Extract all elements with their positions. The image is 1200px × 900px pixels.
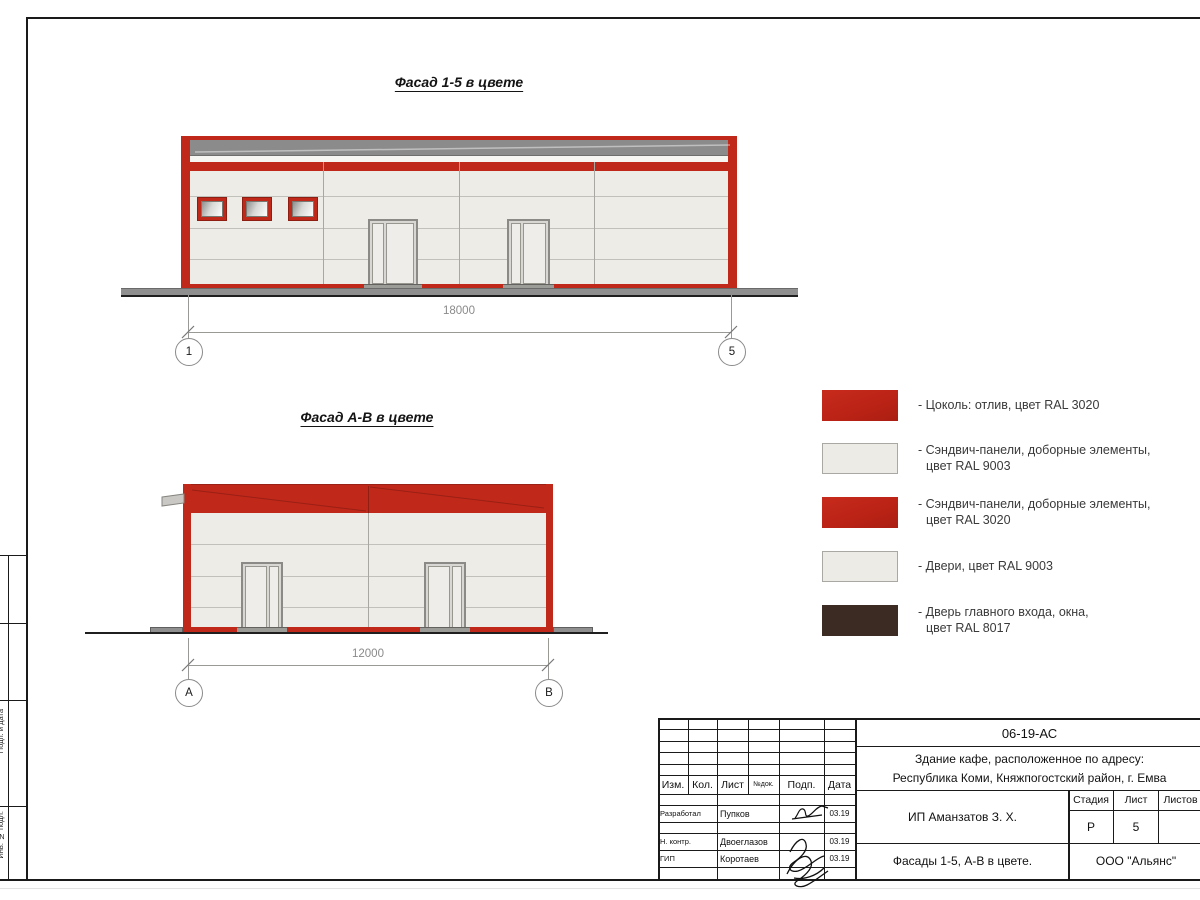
axis-label: 5 xyxy=(729,346,735,358)
legend-text: - Дверь главного входа, окна, xyxy=(918,604,1089,620)
dimension-text: 12000 xyxy=(318,648,418,660)
col-header-podp: Подп. xyxy=(779,775,824,794)
sheet-header: Лист xyxy=(1114,790,1158,810)
title-block-line xyxy=(658,741,855,742)
door-leaf-wide xyxy=(245,566,267,628)
col-header-izm: Изм. xyxy=(658,775,688,794)
stage-header: Стадия xyxy=(1069,790,1113,810)
door-leaf-wide xyxy=(386,223,414,284)
title-block: 06-19-АС Здание кафе, расположенное по а… xyxy=(658,718,1200,881)
row-gip-date: 03.19 xyxy=(824,850,855,867)
title-block-line xyxy=(658,764,855,765)
facade1-column-right xyxy=(728,136,737,290)
legend-item-panels-white: - Сэндвич-панели, доборные элементы,цвет… xyxy=(822,442,1200,474)
panel-seam xyxy=(368,513,369,627)
frame-left-line xyxy=(26,17,28,881)
title-block-line xyxy=(658,752,855,753)
title-block-line xyxy=(779,718,780,881)
project-name: Здание кафе, расположенное по адресу: Ре… xyxy=(857,748,1200,790)
facade2-column-right xyxy=(546,484,553,633)
col-header-list: Лист xyxy=(717,775,748,794)
row-developed-role: Разработал xyxy=(660,805,716,822)
door-leaf-narrow xyxy=(372,223,384,284)
side-strip-hline xyxy=(0,555,27,556)
door-leaf-narrow xyxy=(452,566,462,628)
facade2-column-left xyxy=(183,484,191,633)
axis-label: А xyxy=(185,687,193,699)
window-glass xyxy=(292,201,314,217)
entrance-door xyxy=(241,562,283,632)
title-block-line xyxy=(658,729,855,730)
col-header-kol: Кол. xyxy=(688,775,717,794)
drawing-sheet: Согласовано Подп. и дата Инв. № подл. Фа… xyxy=(0,0,1200,900)
row-ncontrol-name: Двоеглазов xyxy=(720,833,778,850)
legend-item-plinth: - Цоколь: отлив, цвет RAL 3020 xyxy=(822,389,1200,421)
title-block-line xyxy=(658,794,855,795)
axis-label: В xyxy=(545,687,553,699)
entrance-door xyxy=(424,562,466,632)
door-leaf-narrow xyxy=(269,566,279,628)
side-strip-label-sign-date: Подп. и дата xyxy=(0,709,5,753)
axis-bubble-b: В xyxy=(535,679,563,707)
legend-item-panels-red: - Сэндвич-панели, доборные элементы,цвет… xyxy=(822,496,1200,528)
axis-bubble-5: 5 xyxy=(718,338,746,366)
legend-swatch-white xyxy=(822,551,898,582)
side-strip-vline xyxy=(8,555,9,880)
company-name: ООО "Альянс" xyxy=(1070,843,1200,879)
facade1-column-left xyxy=(181,136,190,290)
row-developed-date: 03.19 xyxy=(824,805,855,822)
side-strip-label-agreed: Согласовано xyxy=(0,626,2,662)
title-block-line xyxy=(658,879,1200,881)
door-leaf-narrow xyxy=(511,223,521,284)
window-glass xyxy=(201,201,223,217)
legend-text: - Цоколь: отлив, цвет RAL 3020 xyxy=(918,397,1099,413)
sheet-title: Фасады 1-5, А-В в цвете. xyxy=(857,843,1068,879)
legend-item-doors: - Двери, цвет RAL 9003 xyxy=(822,550,1200,582)
title-block-line xyxy=(717,718,718,881)
entrance-door xyxy=(368,219,418,288)
side-strip-cell-sign-date: Подп. и дата xyxy=(0,701,8,805)
window-glass xyxy=(246,201,268,217)
sheet-edge-faint-line xyxy=(0,888,1200,889)
axis-bubble-1: 1 xyxy=(175,338,203,366)
row-gip-name: Коротаев xyxy=(720,850,778,867)
side-strip-label-inv: Инв. № подл. xyxy=(0,811,5,859)
row-ncontrol-date: 03.19 xyxy=(824,833,855,850)
stage-value: Р xyxy=(1069,810,1113,843)
legend-text: цвет RAL 9003 xyxy=(918,458,1151,474)
dimension-line xyxy=(188,332,731,333)
dimension-text: 18000 xyxy=(409,305,509,317)
facade2-ground-line xyxy=(85,632,608,634)
row-ncontrol-role: Н. контр. xyxy=(660,833,716,850)
title-block-line xyxy=(658,867,855,868)
facade-1-5-title: Фасад 1-5 в цвете xyxy=(395,74,523,90)
side-strip-cell-inv: Инв. № подл. xyxy=(0,807,8,879)
legend-text: - Двери, цвет RAL 9003 xyxy=(918,558,1053,574)
panel-seam xyxy=(594,162,595,284)
legend-text: цвет RAL 3020 xyxy=(918,512,1151,528)
side-strip-cell-agreed: Согласовано xyxy=(0,624,8,699)
window xyxy=(197,197,227,221)
col-header-ndok: №док. xyxy=(748,775,779,794)
panel-seam xyxy=(459,162,460,284)
sheets-header: Листов xyxy=(1159,790,1200,810)
project-line2: Республика Коми, Княжпогостский район, г… xyxy=(893,769,1167,788)
col-header-data: Дата xyxy=(824,775,855,794)
client-name: ИП Аманзатов З. Х. xyxy=(857,790,1068,843)
legend-text: цвет RAL 8017 xyxy=(918,620,1089,636)
legend-item-main-door: - Дверь главного входа, окна,цвет RAL 80… xyxy=(822,604,1200,636)
panel-seam xyxy=(323,162,324,284)
legend-swatch-red xyxy=(822,390,898,421)
window xyxy=(242,197,272,221)
title-block-line xyxy=(855,746,1200,747)
facade1-ground-strip xyxy=(121,288,798,297)
title-block-line xyxy=(658,822,855,823)
axis-bubble-a: А xyxy=(175,679,203,707)
entrance-door xyxy=(507,219,550,288)
row-developed-name: Пупков xyxy=(720,805,778,822)
doc-code: 06-19-АС xyxy=(857,720,1200,746)
legend-swatch-white xyxy=(822,443,898,474)
facade-a-b-title: Фасад А-В в цвете xyxy=(301,409,434,425)
window xyxy=(288,197,318,221)
door-leaf-wide xyxy=(523,223,546,284)
door-leaf-wide xyxy=(428,566,450,628)
extension-line xyxy=(188,638,189,679)
legend-swatch-brown xyxy=(822,605,898,636)
sheet-number: 5 xyxy=(1114,810,1158,843)
dimension-line xyxy=(188,665,548,666)
axis-label: 1 xyxy=(186,346,192,358)
panel-seam xyxy=(368,486,369,513)
extension-line xyxy=(731,295,732,338)
frame-top-line xyxy=(26,17,1200,19)
row-gip-role: ГИП xyxy=(660,850,716,867)
facade1-parapet-band xyxy=(190,140,728,156)
gutter-scupper xyxy=(162,494,184,506)
legend-swatch-red xyxy=(822,497,898,528)
legend-text: - Сэндвич-панели, доборные элементы, xyxy=(918,496,1151,512)
extension-line xyxy=(548,638,549,679)
legend-text: - Сэндвич-панели, доборные элементы, xyxy=(918,442,1151,458)
project-line1: Здание кафе, расположенное по адресу: xyxy=(915,750,1144,769)
